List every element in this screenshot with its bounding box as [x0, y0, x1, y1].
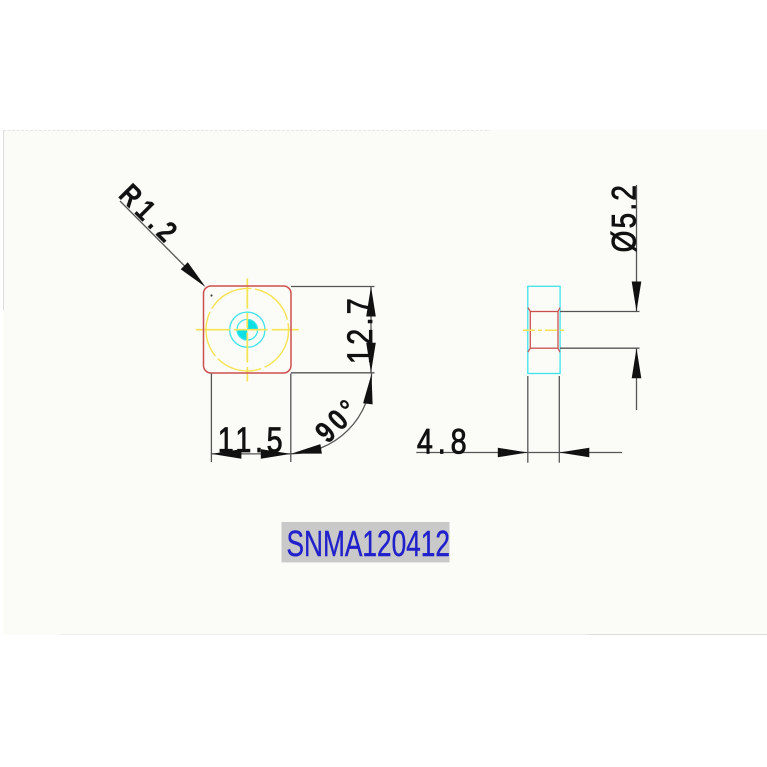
- svg-text:Ø5.2: Ø5.2: [605, 183, 643, 253]
- svg-text:4.8: 4.8: [417, 422, 472, 461]
- svg-text:SNMA120412: SNMA120412: [287, 523, 451, 564]
- svg-text:12.7: 12.7: [340, 295, 379, 364]
- svg-text:11.5: 11.5: [218, 420, 286, 459]
